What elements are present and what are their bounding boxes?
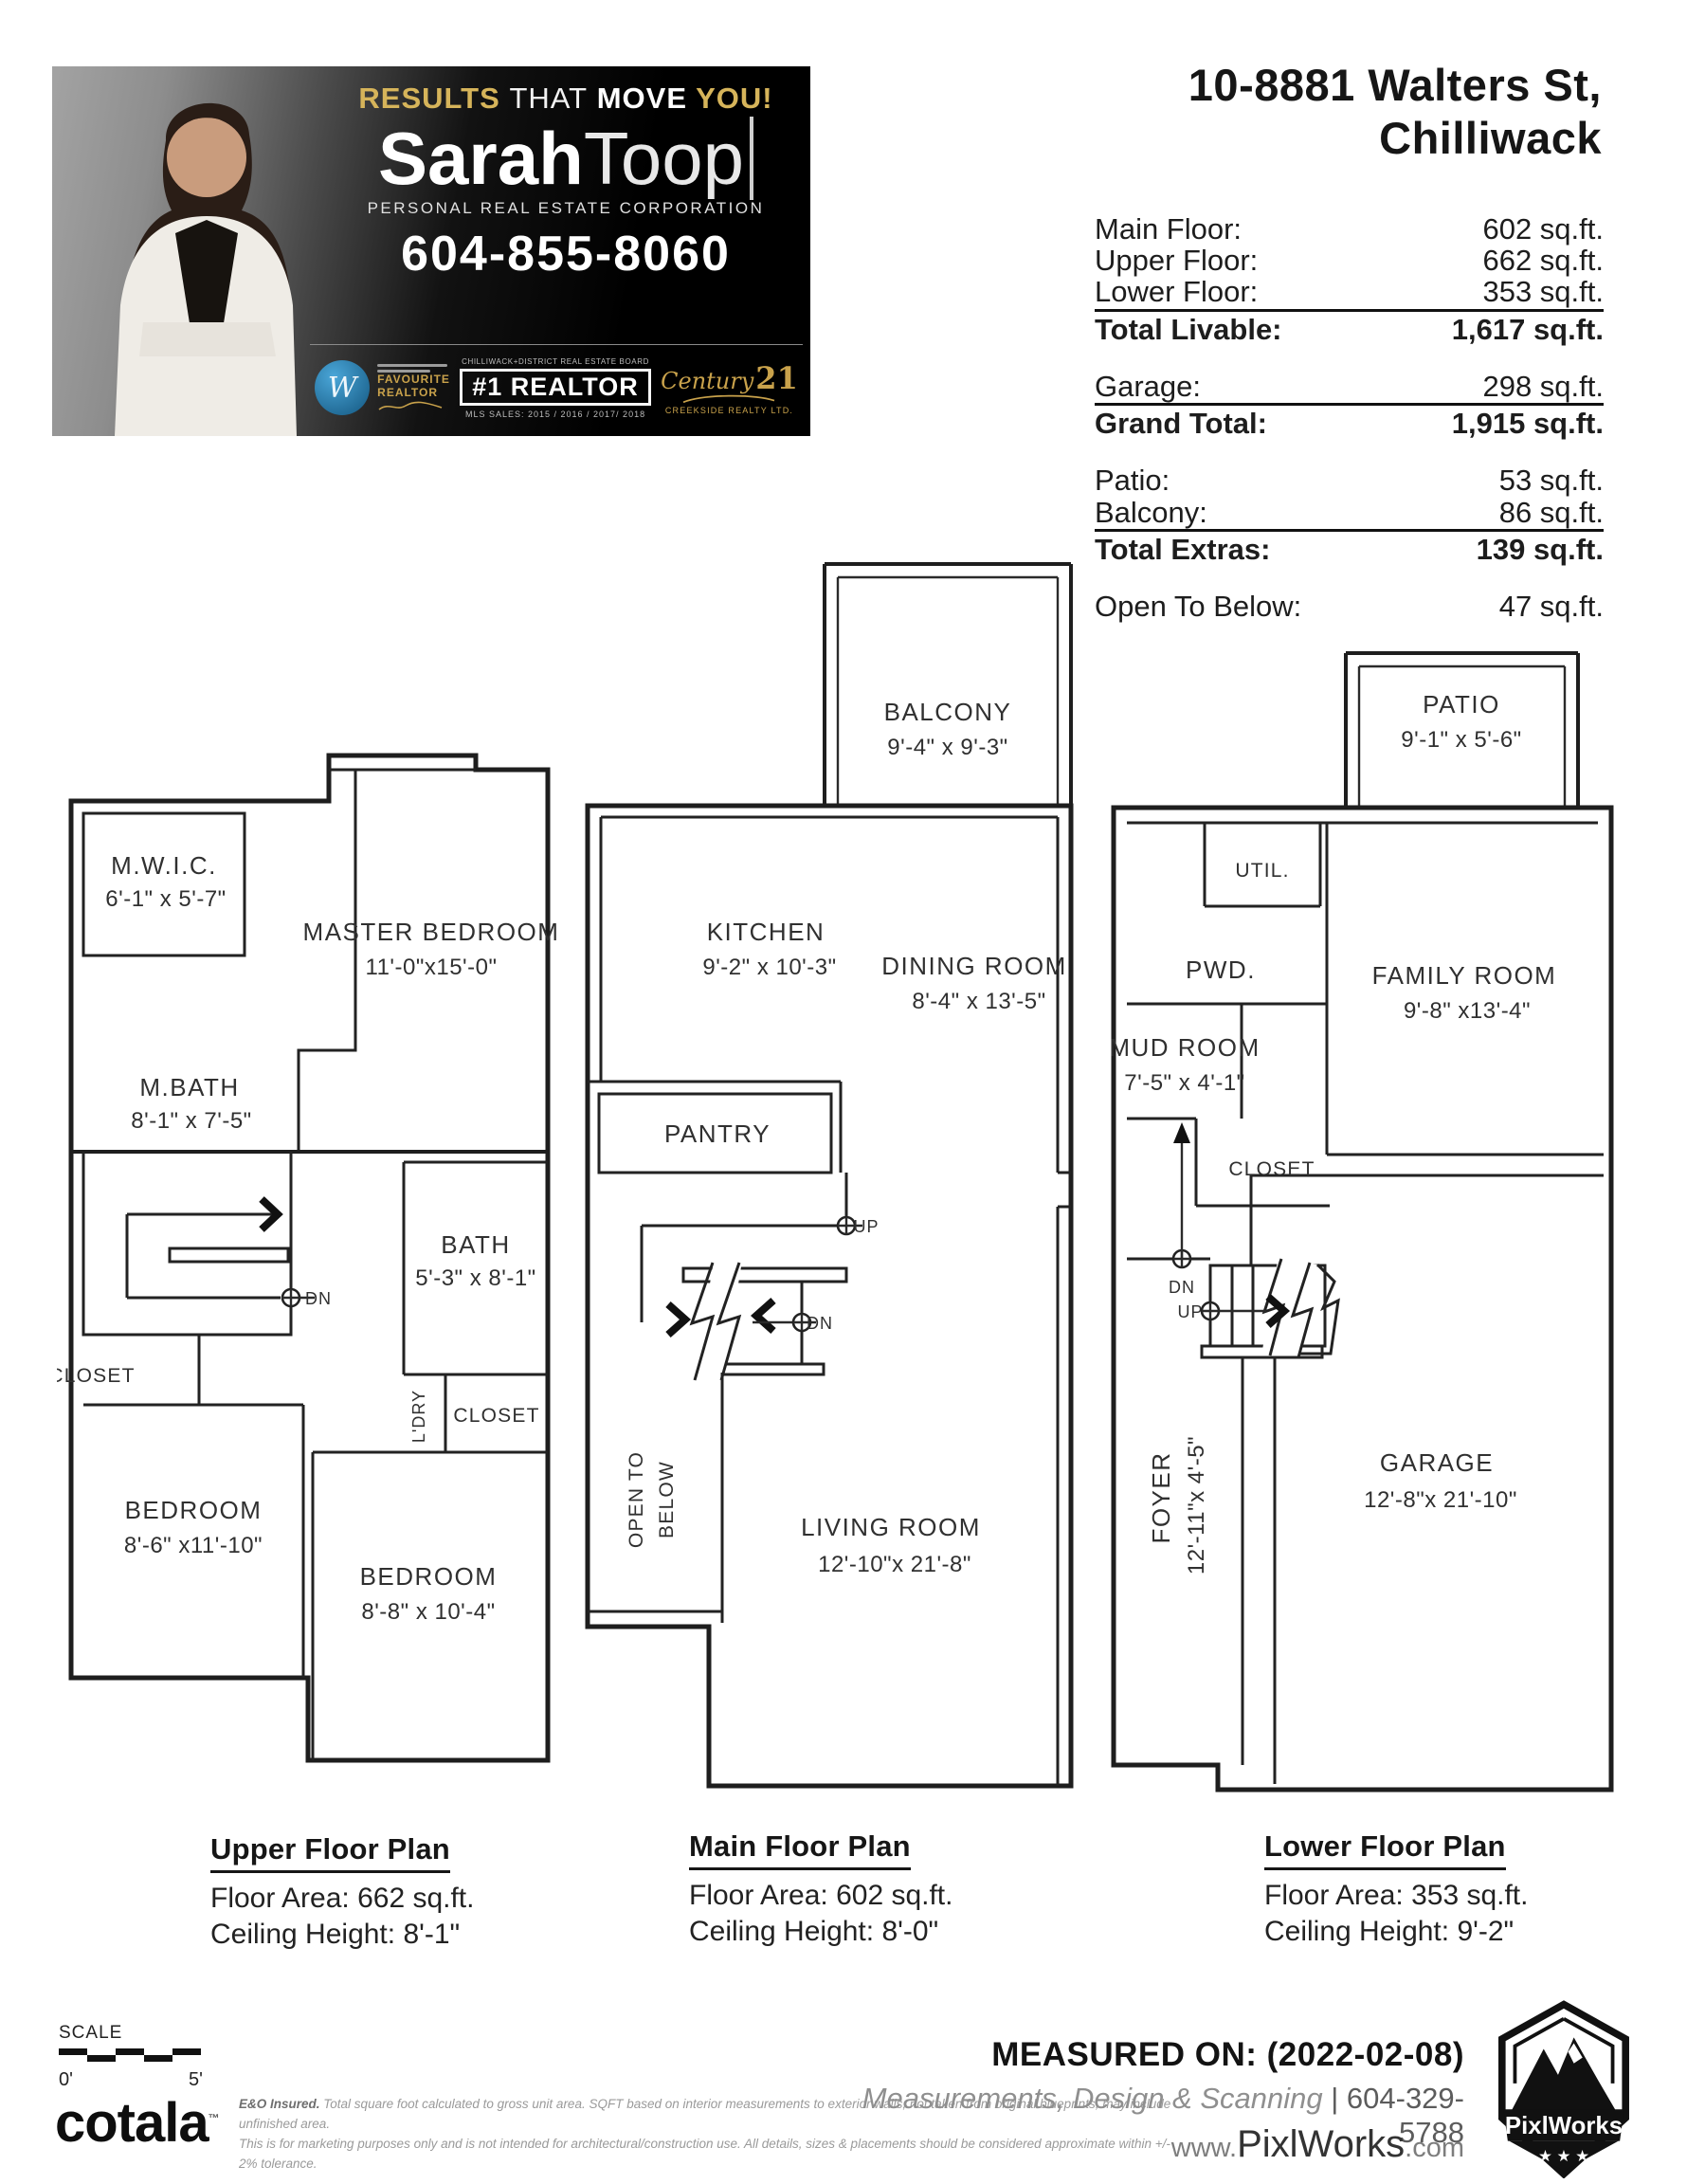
stair-bottom: [722, 1364, 824, 1374]
room-dims-dining: 8'-4" x 13'-5": [912, 989, 1045, 1014]
tagline-that: THAT: [509, 82, 588, 115]
walls: [299, 770, 355, 1152]
room-dims-bedroom1: 8'-6" x11'-10": [124, 1533, 263, 1558]
room-label-patio: PATIO: [1423, 690, 1500, 719]
upper-plan-ceiling: Ceiling Height: 8'-1": [210, 1917, 474, 1953]
main-plan-caption: Main Floor Plan Floor Area: 602 sq.ft. C…: [689, 1829, 952, 1949]
room-dims-balcony: 9'-4" x 9'-3": [887, 735, 1007, 760]
century21-brokerage: CREEKSIDE REALTY LTD.: [665, 406, 793, 415]
favourite-label: FAVOURITE: [377, 373, 450, 387]
room-label-bedroom2: BEDROOM: [360, 1562, 498, 1591]
row-value: 602 sq.ft.: [1482, 214, 1604, 245]
room-dims-kitchen: 9'-2" x 10'-3": [702, 955, 836, 980]
upper-plan-area: Floor Area: 662 sq.ft.: [210, 1881, 474, 1917]
room-label-bath: BATH: [441, 1230, 510, 1259]
room-label-closet: CLOSET: [1228, 1158, 1315, 1180]
realtor-banner: RESULTS THAT MOVE YOU! SarahToop PERSONA…: [52, 66, 810, 436]
row-label: Upper Floor:: [1095, 246, 1258, 276]
scale-label: SCALE: [59, 2023, 220, 2044]
room-label-mud: MUD ROOM: [1109, 1033, 1260, 1062]
stair-dn-label: DN: [807, 1314, 833, 1333]
row-value: 1,617 sq.ft.: [1452, 315, 1604, 345]
area-summary-table: Main Floor:602 sq.ft. Upper Floor:662 sq…: [1095, 214, 1604, 623]
stair-dn-label: DN: [305, 1289, 332, 1308]
table-row: Lower Floor:353 sq.ft.: [1095, 277, 1604, 307]
upper-plan-title: Upper Floor Plan: [210, 1832, 450, 1873]
scale-five: 5': [189, 2069, 203, 2091]
stair-dn-label: DN: [1169, 1278, 1195, 1297]
up-marker: [1202, 1302, 1266, 1319]
room-dims-garage: 12'-8"x 21'-10": [1364, 1487, 1517, 1513]
favourite-realtor-badge: W FAVOURITE REALTOR: [315, 360, 450, 415]
row-value: 86 sq.ft.: [1499, 498, 1604, 528]
pixlworks-wordmark: PixlWorks: [1505, 2113, 1623, 2139]
scale-bar-icon: [59, 2047, 203, 2063]
room-dims-living: 12'-10"x 21'-8": [818, 1552, 971, 1577]
row-value: 53 sq.ft.: [1499, 465, 1604, 496]
lower-plan-title: Lower Floor Plan: [1264, 1829, 1506, 1870]
room-label-dining: DINING ROOM: [881, 952, 1067, 980]
row-label: Garage:: [1095, 372, 1201, 402]
pixlworks-logo: PixlWorks ★ ★ ★: [1492, 2000, 1636, 2178]
cotala-logo: cotala™: [55, 2091, 219, 2155]
main-plan-area: Floor Area: 602 sq.ft.: [689, 1878, 952, 1914]
lower-floor-plan-drawing: DN UP PATIO 9'-1" x 5'-6" UTIL. PWD. FAM…: [1104, 635, 1621, 1796]
stars-icon: ★ ★ ★: [1538, 2147, 1589, 2165]
room-label-foyer: FOYER: [1147, 1451, 1175, 1543]
balcony-walls: [825, 564, 1071, 806]
room-dims-bath: 5'-3" x 8'-1": [415, 1265, 535, 1291]
table-row: Patio:53 sq.ft.: [1095, 465, 1604, 496]
number-one-realtor-badge: CHILLIWACK+DISTRICT REAL ESTATE BOARD #1…: [460, 357, 651, 419]
century21-number: 21: [755, 360, 798, 396]
row-value: 47 sq.ft.: [1499, 591, 1604, 622]
room-label-pwd: PWD.: [1186, 955, 1256, 984]
walls: [83, 813, 245, 955]
room-dims-bedroom2: 8'-8" x 10'-4": [361, 1599, 495, 1625]
row-label: Balcony:: [1095, 498, 1207, 528]
room-label-balcony: BALCONY: [884, 698, 1012, 726]
website-line: www.PixlWorks.com: [834, 2123, 1464, 2166]
tagline-move: MOVE: [597, 82, 687, 115]
disclaimer-bold: E&O Insured.: [239, 2097, 320, 2111]
up-arrow-icon: [1173, 1122, 1190, 1143]
room-dims-family: 9'-8" x13'-4": [1404, 998, 1531, 1024]
favourite-realtor-text: FAVOURITE REALTOR: [377, 362, 450, 413]
main-plan-ceiling: Ceiling Height: 8'-0": [689, 1914, 952, 1950]
room-label-mbath: M.BATH: [139, 1073, 239, 1101]
floor-plan-flyer: RESULTS THAT MOVE YOU! SarahToop PERSONA…: [0, 0, 1687, 2184]
room-label-living: LIVING ROOM: [801, 1513, 981, 1541]
realtor-name: SarahToop: [327, 121, 805, 195]
room-label-pantry: PANTRY: [664, 1119, 771, 1148]
room-label-open-to-below-1: OPEN TO: [626, 1451, 647, 1548]
room-label-garage: GARAGE: [1380, 1448, 1494, 1477]
room-label-master-bedroom: MASTER BEDROOM: [303, 918, 560, 946]
address-line1: 10-8881 Walters St,: [938, 59, 1602, 112]
row-label: Lower Floor:: [1095, 277, 1258, 307]
room-label-family: FAMILY ROOM: [1372, 961, 1557, 990]
room-dims-mwic: 6'-1" x 5'-7": [105, 886, 226, 912]
number-one-realtor-label: #1 REALTOR: [460, 369, 651, 406]
address-line2: Chilliwack: [938, 112, 1602, 165]
stair-break-arrow-icon: [756, 1301, 773, 1331]
century21-logo: Century21: [661, 360, 798, 396]
table-row: Garage:298 sq.ft.: [1095, 372, 1604, 402]
row-label: Total Extras:: [1095, 535, 1270, 565]
realtor-last-name: Toop: [584, 117, 753, 200]
walls: [601, 817, 1058, 1082]
website-name: PixlWorks: [1237, 2123, 1405, 2165]
mls-sales-label: MLS SALES: 2015 / 2016 / 2017/ 2018: [465, 409, 645, 419]
lower-plan-ceiling: Ceiling Height: 9'-2": [1264, 1914, 1528, 1950]
table-row-open-to-below: Open To Below:47 sq.ft.: [1095, 591, 1604, 622]
table-row: Upper Floor:662 sq.ft.: [1095, 246, 1604, 276]
row-label: Open To Below:: [1095, 591, 1301, 622]
banner-text: RESULTS THAT MOVE YOU! SarahToop PERSONA…: [327, 82, 805, 282]
tagline-results: RESULTS: [358, 82, 499, 115]
table-gap: [1095, 440, 1604, 465]
row-label: Total Livable:: [1095, 315, 1282, 345]
room-dims-master-bedroom: 11'-0"x15'-0": [366, 955, 498, 980]
room-label-laundry: L'DRY: [409, 1390, 428, 1443]
table-row-total-extras: Total Extras:139 sq.ft.: [1095, 529, 1604, 565]
main-plan-title: Main Floor Plan: [689, 1829, 911, 1870]
badge-monogram: W: [328, 372, 357, 405]
stair-bottom: [1202, 1346, 1322, 1357]
badge-strip: W FAVOURITE REALTOR CHILLIWACK+DISTRICT …: [310, 344, 803, 430]
row-value: 662 sq.ft.: [1482, 246, 1604, 276]
signature-squiggle-icon: [377, 400, 444, 413]
walls: [588, 1373, 722, 1623]
stair-break-mask: [1262, 1261, 1317, 1354]
row-label: Main Floor:: [1095, 214, 1242, 245]
upper-floor-plan-drawing: DN M.W.I.C. 6'-1" x 5'-7" MASTER BEDROOM…: [57, 735, 573, 1777]
room-dims-mbath: 8'-1" x 7'-5": [131, 1108, 251, 1134]
scale-ends: 0' 5': [59, 2069, 203, 2091]
table-row: Balcony:86 sq.ft.: [1095, 498, 1604, 528]
row-value: 1,915 sq.ft.: [1452, 409, 1604, 439]
row-value: 139 sq.ft.: [1477, 535, 1604, 565]
upper-plan-caption: Upper Floor Plan Floor Area: 662 sq.ft. …: [210, 1832, 474, 1952]
tagline-you: YOU!: [696, 82, 773, 115]
realtor-subtitle: PERSONAL REAL ESTATE CORPORATION: [327, 199, 805, 218]
room-label-bedroom1: BEDROOM: [125, 1496, 263, 1524]
room-label-util: UTIL.: [1235, 860, 1289, 882]
micro-text-bar: [377, 364, 447, 367]
stair-up-label: UP: [853, 1217, 879, 1236]
stair-landing: [170, 1248, 288, 1262]
walls: [83, 1152, 291, 1335]
services-text: Measurements, Design & Scanning: [862, 2082, 1323, 2115]
cotala-trademark: ™: [209, 2112, 219, 2125]
lower-plan-caption: Lower Floor Plan Floor Area: 353 sq.ft. …: [1264, 1829, 1528, 1949]
banner-tagline: RESULTS THAT MOVE YOU!: [327, 82, 805, 116]
room-label-open-to-below-2: BELOW: [656, 1461, 678, 1538]
row-label: Grand Total:: [1095, 409, 1267, 439]
website-www: www.: [1171, 2133, 1237, 2163]
room-label-closet-right: CLOSET: [453, 1405, 539, 1427]
stair-treads: [1232, 1265, 1253, 1346]
balcony-walls: [838, 577, 1058, 804]
room-label-mwic: M.W.I.C.: [111, 851, 217, 880]
scale-block: SCALE 0' 5': [59, 2023, 220, 2091]
table-row: Main Floor:602 sq.ft.: [1095, 214, 1604, 245]
realtor-phone: 604-855-8060: [327, 226, 805, 282]
row-value: 298 sq.ft.: [1482, 372, 1604, 402]
room-label-kitchen: KITCHEN: [707, 918, 825, 946]
century21-name: Century: [661, 368, 753, 394]
scale-zero: 0': [59, 2069, 73, 2091]
century21-badge: Century21 CREEKSIDE REALTY LTD.: [661, 360, 798, 415]
row-value: 353 sq.ft.: [1482, 277, 1604, 307]
main-floor-plan-drawing: UP DN BALCONY 9'-4" x 9'-3" KITCHEN 9'-2…: [578, 555, 1080, 1796]
realtor-first-name: Sarah: [378, 117, 584, 200]
table-row-total-livable: Total Livable:1,617 sq.ft.: [1095, 309, 1604, 345]
measured-on: MEASURED ON: (2022-02-08): [834, 2036, 1464, 2074]
room-dims-patio: 9'-1" x 5'-6": [1401, 727, 1521, 753]
room-dims-mud: 7'-5" x 4'-1": [1124, 1070, 1244, 1096]
favourite-realtor-icon: W: [315, 360, 370, 415]
stair-break-arrow-icon: [668, 1304, 685, 1335]
room-label-closet-left: CLOSET: [57, 1365, 136, 1387]
century21-swoosh-icon: [672, 392, 786, 404]
table-gap: [1095, 346, 1604, 372]
row-label: Patio:: [1095, 465, 1170, 496]
table-gap: [1095, 566, 1604, 591]
cotala-wordmark: cotala: [55, 2092, 209, 2154]
website-com: .com: [1405, 2133, 1464, 2163]
lower-plan-area: Floor Area: 353 sq.ft.: [1264, 1878, 1528, 1914]
realtor-label: REALTOR: [377, 387, 438, 400]
property-address: 10-8881 Walters St, Chilliwack: [938, 59, 1602, 166]
room-dims-foyer: 12'-11"x 4'-5": [1184, 1436, 1209, 1574]
stair-up-label: UP: [1177, 1302, 1203, 1321]
table-row-grand-total: Grand Total:1,915 sq.ft.: [1095, 403, 1604, 439]
real-estate-board-label: CHILLIWACK+DISTRICT REAL ESTATE BOARD: [462, 357, 649, 366]
